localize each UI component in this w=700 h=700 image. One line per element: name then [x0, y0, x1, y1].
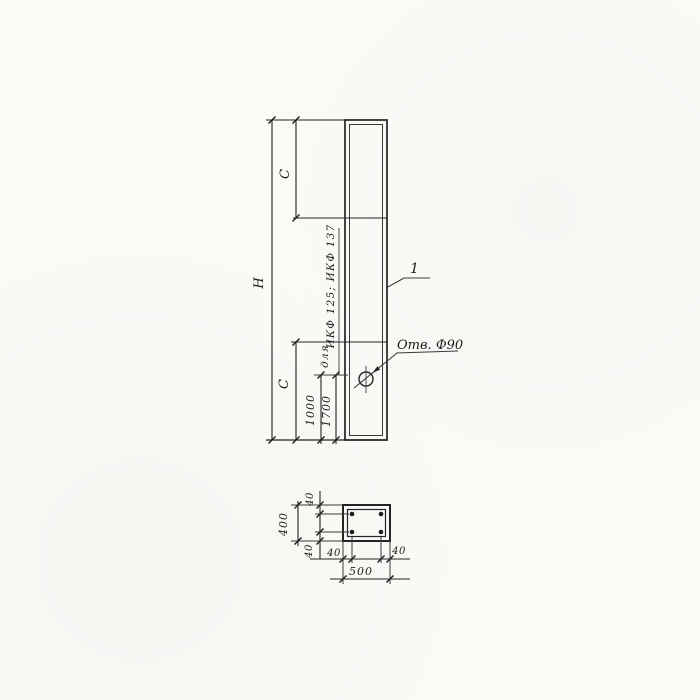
dim-label-overall-height: H — [252, 277, 267, 290]
dim-label-cover-left: 40 — [326, 548, 341, 559]
hole-callout-text: Отв. Ф90 — [397, 338, 463, 353]
rebar-dots — [350, 512, 384, 535]
dim-label-1700: 1700 — [320, 395, 333, 427]
rebar-dot — [379, 512, 384, 517]
elevation-view: H C C 1000 1700 для ИКФ 125; ИКФ 137 Отв… — [252, 117, 463, 445]
rebar-dot — [379, 530, 384, 535]
technical-drawing: H C C 1000 1700 для ИКФ 125; ИКФ 137 Отв… — [0, 0, 700, 700]
dim-label-1000: 1000 — [304, 394, 317, 426]
rebar-dot — [350, 512, 355, 517]
cross-section-view: 400 40 40 40 40 500 — [277, 491, 410, 584]
note-models-text: ИКФ 125; ИКФ 137 — [325, 224, 337, 350]
dim-label-segment-bottom: C — [277, 379, 292, 389]
section-outline — [343, 505, 390, 541]
item-leader-line — [386, 278, 430, 288]
item-number-text: 1 — [410, 261, 419, 277]
rebar-dot — [350, 530, 355, 535]
dim-label-cover-bottom: 40 — [304, 544, 315, 559]
dim-label-400: 400 — [277, 512, 290, 537]
dim-label-cover-right: 40 — [391, 546, 406, 557]
dim-label-cover-top: 40 — [305, 492, 316, 507]
dim-label-segment-top: C — [278, 169, 293, 179]
dim-label-500: 500 — [349, 565, 373, 578]
drawing-sheet: H C C 1000 1700 для ИКФ 125; ИКФ 137 Отв… — [0, 0, 700, 700]
